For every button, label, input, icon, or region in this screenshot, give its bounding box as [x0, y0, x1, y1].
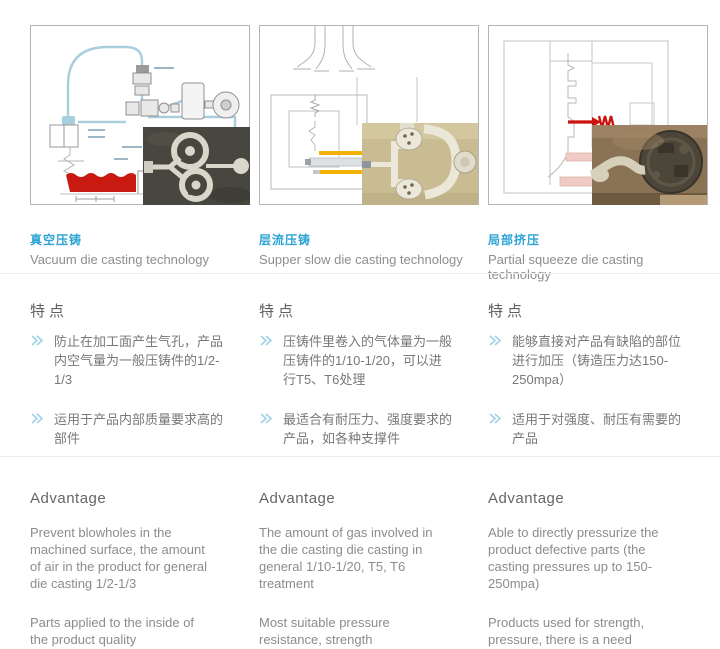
vacuum-diagram-figure — [30, 25, 250, 205]
advantage-heading: Advantage — [30, 490, 250, 512]
title-zh: 真空压铸 — [30, 231, 250, 248]
column-titles: 层流压铸 Supper slow die casting technology — [259, 231, 479, 273]
column-titles: 局部挤压 Partial squeeze die casting technol… — [488, 231, 708, 273]
double-chevron-icon — [488, 410, 512, 430]
feature-text: 防止在加工面产生气孔，产品内空气量为一般压铸件的1/2-1/3 — [54, 332, 224, 389]
partial-squeeze-casting-photo-inset — [591, 125, 707, 205]
advantage-heading: Advantage — [259, 490, 479, 512]
partial-squeeze-schematic — [488, 25, 708, 205]
partial-squeeze-diagram-figure — [488, 25, 708, 205]
advantage-text: Products used for strength, pressure, th… — [488, 614, 673, 648]
title-zh: 层流压铸 — [259, 231, 479, 248]
advantage-section: Advantage Able to directly pressurize th… — [488, 490, 708, 648]
feature-item: 压铸件里卷入的气体量为一般压铸件的1/10-1/20，可以进行T5、T6处理 — [259, 332, 479, 389]
advantage-text: Parts applied to the inside of the produ… — [30, 614, 215, 649]
vacuum-machine-block — [50, 125, 78, 147]
title-zh: 局部挤压 — [488, 231, 708, 248]
features-heading: 特点 — [488, 300, 708, 322]
die-casting-technology-page: 真空压铸 Vacuum die casting technology 特点 防止… — [0, 0, 720, 649]
column-super-slow-die-casting: 层流压铸 Supper slow die casting technology … — [259, 0, 479, 649]
super-slow-diagram-figure — [259, 25, 479, 205]
feature-text: 运用于产品内部质量要求高的部件 — [54, 410, 224, 448]
features-heading: 特点 — [30, 300, 250, 322]
advantage-heading: Advantage — [488, 490, 708, 512]
advantage-section: Advantage Prevent blowholes in the machi… — [30, 490, 250, 649]
super-slow-casting-photo-inset — [362, 123, 478, 205]
feature-item: 运用于产品内部质量要求高的部件 — [30, 410, 250, 448]
feature-item: 防止在加工面产生气孔，产品内空气量为一般压铸件的1/2-1/3 — [30, 332, 250, 389]
section-divider-top — [0, 273, 720, 274]
double-chevron-icon — [30, 410, 54, 430]
features-heading: 特点 — [259, 300, 479, 322]
section-divider-bottom — [0, 456, 720, 457]
title-en: Vacuum die casting technology — [30, 252, 250, 267]
advantage-section: Advantage The amount of gas involved in … — [259, 490, 479, 649]
feature-item: 能够直接对产品有缺陷的部位进行加压（铸造压力达150-250mpa） — [488, 332, 708, 389]
super-slow-die-casting-schematic — [259, 25, 479, 205]
column-vacuum-die-casting: 真空压铸 Vacuum die casting technology 特点 防止… — [30, 0, 250, 649]
column-partial-squeeze: 局部挤压 Partial squeeze die casting technol… — [488, 0, 708, 649]
feature-text: 适用于对强度、耐压有需要的产品 — [512, 410, 682, 448]
features-list: 压铸件里卷入的气体量为一般压铸件的1/10-1/20，可以进行T5、T6处理 最… — [259, 332, 479, 460]
vacuum-die-casting-schematic — [30, 25, 250, 205]
features-list: 防止在加工面产生气孔，产品内空气量为一般压铸件的1/2-1/3 运用于产品内部质… — [30, 332, 250, 460]
features-list: 能够直接对产品有缺陷的部位进行加压（铸造压力达150-250mpa） 适用于对强… — [488, 332, 708, 460]
double-chevron-icon — [30, 332, 54, 352]
three-column-layout: 真空压铸 Vacuum die casting technology 特点 防止… — [0, 0, 720, 649]
vacuum-casting-photo-inset — [143, 127, 250, 205]
advantage-text: Prevent blowholes in the machined surfac… — [30, 524, 215, 592]
feature-text: 压铸件里卷入的气体量为一般压铸件的1/10-1/20，可以进行T5、T6处理 — [283, 332, 453, 389]
feature-text: 最适合有耐压力、强度要求的产品，如各种支撑件 — [283, 410, 453, 448]
feature-item: 适用于对强度、耐压有需要的产品 — [488, 410, 708, 448]
feature-text: 能够直接对产品有缺陷的部位进行加压（铸造压力达150-250mpa） — [512, 332, 682, 389]
advantage-text: Most suitable pressure resistance, stren… — [259, 614, 444, 649]
double-chevron-icon — [259, 410, 283, 430]
advantage-text: Able to directly pressurize the product … — [488, 524, 673, 592]
double-chevron-icon — [488, 332, 512, 352]
title-en: Supper slow die casting technology — [259, 252, 479, 267]
column-titles: 真空压铸 Vacuum die casting technology — [30, 231, 250, 273]
title-en: Partial squeeze die casting technology — [488, 252, 708, 282]
advantage-text: The amount of gas involved in the die ca… — [259, 524, 444, 592]
double-chevron-icon — [259, 332, 283, 352]
feature-item: 最适合有耐压力、强度要求的产品，如各种支撑件 — [259, 410, 479, 448]
